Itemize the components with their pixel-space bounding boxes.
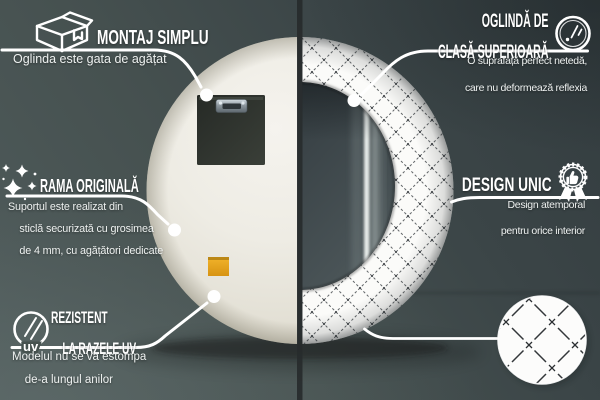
oglinda-subtitle-line1: O suprafață perfect netedă,: [467, 55, 587, 67]
package-box-icon: [29, 11, 95, 53]
uv-subtitle: Modelul nu se va estompa de-a lungul ani…: [12, 352, 146, 398]
design-subtitle: Design atemporal pentru orice interior: [490, 199, 585, 251]
montaj-subtitle: Oglinda este gata de agățat: [13, 52, 167, 66]
product-infographic: MONTAJ SIMPLU Oglinda este gata de agăța…: [0, 0, 600, 400]
rama-title: RAMA ORIGINALĂ: [40, 177, 139, 195]
hanger-bracket: [216, 100, 247, 113]
dot-montaj: [200, 89, 213, 102]
orange-sticker: [208, 257, 229, 276]
dot-rama: [168, 224, 181, 237]
split-divider: [297, 0, 303, 400]
oglinda-subtitle: O suprafață perfect netedă, care nu defo…: [454, 55, 587, 109]
swatch-leader-line: [365, 329, 498, 339]
rama-subtitle-line2: sticlă securizată cu grosimea: [19, 223, 153, 235]
dot-uv: [208, 290, 221, 303]
rama-subtitle-line1: Suportul este realizat din: [8, 201, 123, 213]
uv-subtitle-line2: de-a lungul anilor: [25, 374, 113, 386]
dot-oglinda: [348, 94, 361, 107]
design-title: DESIGN UNIC: [462, 176, 552, 195]
oglinda-title-line1: OGLINDĂ DE: [482, 11, 549, 32]
oglinda-subtitle-line2: care nu deformează reflexia: [465, 82, 587, 94]
uv-subtitle-line1: Modelul nu se va estompa: [12, 351, 146, 363]
uv-no-fade-icon: uv uv: [11, 309, 53, 353]
montaj-title: MONTAJ SIMPLU: [97, 28, 209, 48]
rama-subtitle: Suportul este realizat din sticlă securi…: [8, 202, 163, 268]
sparkles-icon: [1, 161, 41, 203]
uv-title-line1: REZISTENT: [51, 308, 108, 327]
design-subtitle-line2: pentru orice interior: [501, 225, 585, 237]
design-subtitle-line1: Design atemporal: [508, 199, 586, 211]
rama-subtitle-line3: de 4 mm, cu agățători dedicate: [19, 245, 163, 257]
mirror-shine-icon: [552, 13, 594, 55]
